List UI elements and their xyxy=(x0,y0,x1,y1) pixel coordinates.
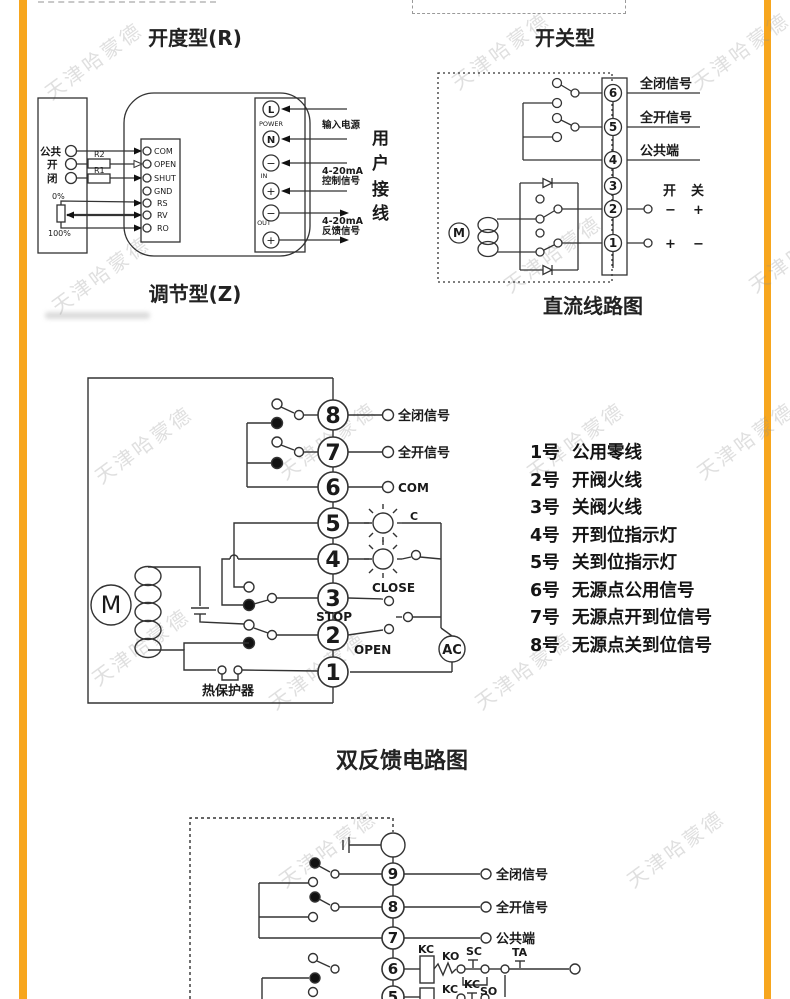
strip-plus-out: + xyxy=(266,234,275,247)
actuator-dashed-box xyxy=(438,73,612,282)
strip-plus-in: + xyxy=(266,185,275,198)
diode-bottom xyxy=(543,266,552,275)
df-term-1: 1 xyxy=(325,661,340,686)
ac-term-8: 8 xyxy=(388,898,398,916)
df-motor-label: M xyxy=(101,591,122,619)
legend-no: 1号 xyxy=(530,439,572,464)
board-term-shut: SHUT xyxy=(154,174,176,183)
df-term-6: 6 xyxy=(325,476,340,501)
strip-out-label: OUT xyxy=(257,219,271,227)
wiring-diagram-page: { "page": { "watermark": "天津哈蒙德", "accen… xyxy=(0,0,790,999)
legend-no: 3号 xyxy=(530,494,572,519)
df-stop-label: STOP xyxy=(316,610,352,624)
legend-row: 4号开到位指示灯 xyxy=(530,521,712,549)
legend-no: 7号 xyxy=(530,604,572,629)
board-term-com: COM xyxy=(154,147,173,156)
ko-label: KO xyxy=(442,950,459,963)
ac-term-5: 5 xyxy=(388,988,398,999)
legend-desc: 关到位指示灯 xyxy=(572,549,677,574)
ac-common-label: 公共端 xyxy=(496,931,535,947)
dc-close-label: 关 xyxy=(691,183,704,199)
board-term-open: OPEN xyxy=(154,160,176,169)
legend-row: 2号开阀火线 xyxy=(530,466,712,494)
dc-open-minus: − xyxy=(665,203,676,218)
r2-label: R2 xyxy=(94,150,105,159)
user-wiring-char-3: 接 xyxy=(372,179,389,200)
dc-term-6: 6 xyxy=(609,86,617,100)
terminal-label-common: 公共 xyxy=(40,145,61,158)
strip-n: N xyxy=(267,135,275,146)
dc-term-1: 1 xyxy=(609,236,617,250)
sc-label: SC xyxy=(466,945,482,958)
df-thermal-label: 热保护器 xyxy=(202,683,255,699)
potentiometer xyxy=(57,205,65,222)
motor-circle xyxy=(381,833,405,857)
df-term-5: 5 xyxy=(325,512,340,537)
board-term-rv: RV xyxy=(157,211,168,220)
user-wiring-char-1: 用 xyxy=(372,129,389,149)
board-term-ro: RO xyxy=(157,224,169,233)
double-feedback-labels: 8 7 6 5 4 3 2 1 全闭信号 全开信号 COM C CLOSE ST… xyxy=(101,404,462,699)
legend-no: 6号 xyxy=(530,577,572,602)
board-term-gnd: GND xyxy=(154,187,172,196)
ac-full-closed-label: 全闭信号 xyxy=(495,867,548,883)
legend-row: 5号关到位指示灯 xyxy=(530,548,712,576)
legend-no: 2号 xyxy=(530,467,572,492)
strip-power-label: POWER xyxy=(259,120,284,128)
ac-feedback-diagram: 9 8 7 6 5 全闭信号 全开信号 公共端 KC KO SC TA KC K… xyxy=(180,810,600,999)
resistor-r1 xyxy=(88,174,110,183)
legend-desc: 无源点开到位信号 xyxy=(572,604,712,629)
left-accent-bar xyxy=(19,0,27,999)
ac-feedback-labels: 9 8 7 6 5 全闭信号 全开信号 公共端 KC KO SC TA KC K… xyxy=(388,865,548,999)
title-regulating: 开度型(R) xyxy=(90,22,300,51)
ac-term-7: 7 xyxy=(388,929,398,947)
df-full-open-label: 全开信号 xyxy=(397,445,450,461)
ac-full-open-label: 全开信号 xyxy=(495,900,548,916)
df-term-2: 2 xyxy=(325,624,340,649)
watermark: 天津哈蒙德 xyxy=(620,802,730,893)
mid-left-remnant xyxy=(45,312,150,319)
df-com-label: COM xyxy=(398,481,429,495)
feedback-signal-note: 反馈信号 xyxy=(322,225,361,237)
df-open-label: OPEN xyxy=(354,643,391,657)
legend-row: 8号无源点关到位信号 xyxy=(530,631,712,659)
legend-row: 7号无源点开到位信号 xyxy=(530,603,712,631)
strip-minus-in: − xyxy=(266,157,275,170)
dc-close-minus: − xyxy=(693,237,704,252)
terminal-label-close: 闭 xyxy=(47,172,58,185)
df-c-label: C xyxy=(410,510,418,523)
legend-desc: 开阀火线 xyxy=(572,467,642,492)
dc-term-4: 4 xyxy=(609,153,617,167)
legend-no: 4号 xyxy=(530,522,572,547)
kc1-label: KC xyxy=(418,943,434,956)
so-label: SO xyxy=(480,985,497,998)
title-double-feedback: 双反馈电路图 xyxy=(292,743,512,775)
df-full-closed-label: 全闭信号 xyxy=(397,408,450,424)
dc-close-plus: + xyxy=(693,203,704,218)
regulating-diagram: 公共 开 闭 R2 R1 0% 100% COM OPEN SHUT GND R… xyxy=(30,88,400,262)
legend-row: 3号关阀火线 xyxy=(530,493,712,521)
legend-desc: 公用零线 xyxy=(572,439,642,464)
df-term-3: 3 xyxy=(325,587,340,612)
df-ac-label: AC xyxy=(442,643,462,658)
terminal-label-open: 开 xyxy=(47,159,58,171)
pot-0-label: 0% xyxy=(52,192,65,201)
df-term-4: 4 xyxy=(325,548,340,573)
df-term-7: 7 xyxy=(325,441,340,466)
top-left-remnant xyxy=(38,1,216,3)
legend-row: 6号无源点公用信号 xyxy=(530,576,712,604)
legend-desc: 无源点公用信号 xyxy=(572,577,695,602)
user-wiring-char-4: 线 xyxy=(372,203,389,224)
legend-desc: 无源点关到位信号 xyxy=(572,632,712,657)
switch-type-diagram: 6 5 4 3 2 1 全闭信号 全开信号 公共端 开 关 − + + − M xyxy=(400,0,770,320)
ta-label: TA xyxy=(512,946,528,959)
control-signal-note: 控制信号 xyxy=(322,175,361,187)
legend-no: 8号 xyxy=(530,632,572,657)
kc-relay-coil-2 xyxy=(420,988,434,999)
control-board-outline xyxy=(124,93,310,256)
pot-100-label: 100% xyxy=(48,229,71,238)
caption-regulating: 调节型(Z) xyxy=(90,278,300,307)
board-term-rs: RS xyxy=(157,199,168,208)
dc-term-3: 3 xyxy=(609,179,617,193)
dc-term-2: 2 xyxy=(609,202,617,216)
dc-common-label: 公共端 xyxy=(640,143,679,159)
diode-top xyxy=(543,179,552,188)
double-feedback-diagram: 8 7 6 5 4 3 2 1 全闭信号 全开信号 COM C CLOSE ST… xyxy=(80,370,470,710)
ac-term-6: 6 xyxy=(388,960,398,978)
dc-open-label: 开 xyxy=(663,184,676,199)
kc2-label: KC xyxy=(442,983,458,996)
dc-full-closed-label: 全闭信号 xyxy=(639,76,692,92)
dc-motor-label: M xyxy=(453,226,465,240)
strip-l: L xyxy=(268,105,275,116)
legend-desc: 关阀火线 xyxy=(572,494,642,519)
strip-in-label: IN xyxy=(261,172,268,180)
input-power-note: 输入电源 xyxy=(322,119,361,131)
legend-row: 1号公用零线 xyxy=(530,438,712,466)
legend-no: 5号 xyxy=(530,549,572,574)
dc-full-open-label: 全开信号 xyxy=(639,110,692,126)
df-close-label: CLOSE xyxy=(372,581,415,595)
dc-term-5: 5 xyxy=(609,120,617,134)
dc-open-plus: + xyxy=(665,237,676,252)
legend-desc: 开到位指示灯 xyxy=(572,522,677,547)
kc-relay-coil xyxy=(420,956,434,983)
ac-term-9: 9 xyxy=(388,865,398,883)
r1-label: R1 xyxy=(94,166,105,175)
df-term-8: 8 xyxy=(325,404,340,429)
terminal-legend: 1号公用零线 2号开阀火线 3号关阀火线 4号开到位指示灯 5号关到位指示灯 6… xyxy=(530,438,712,658)
kc3-label: KC xyxy=(464,978,480,991)
user-wiring-char-2: 户 xyxy=(372,153,389,174)
